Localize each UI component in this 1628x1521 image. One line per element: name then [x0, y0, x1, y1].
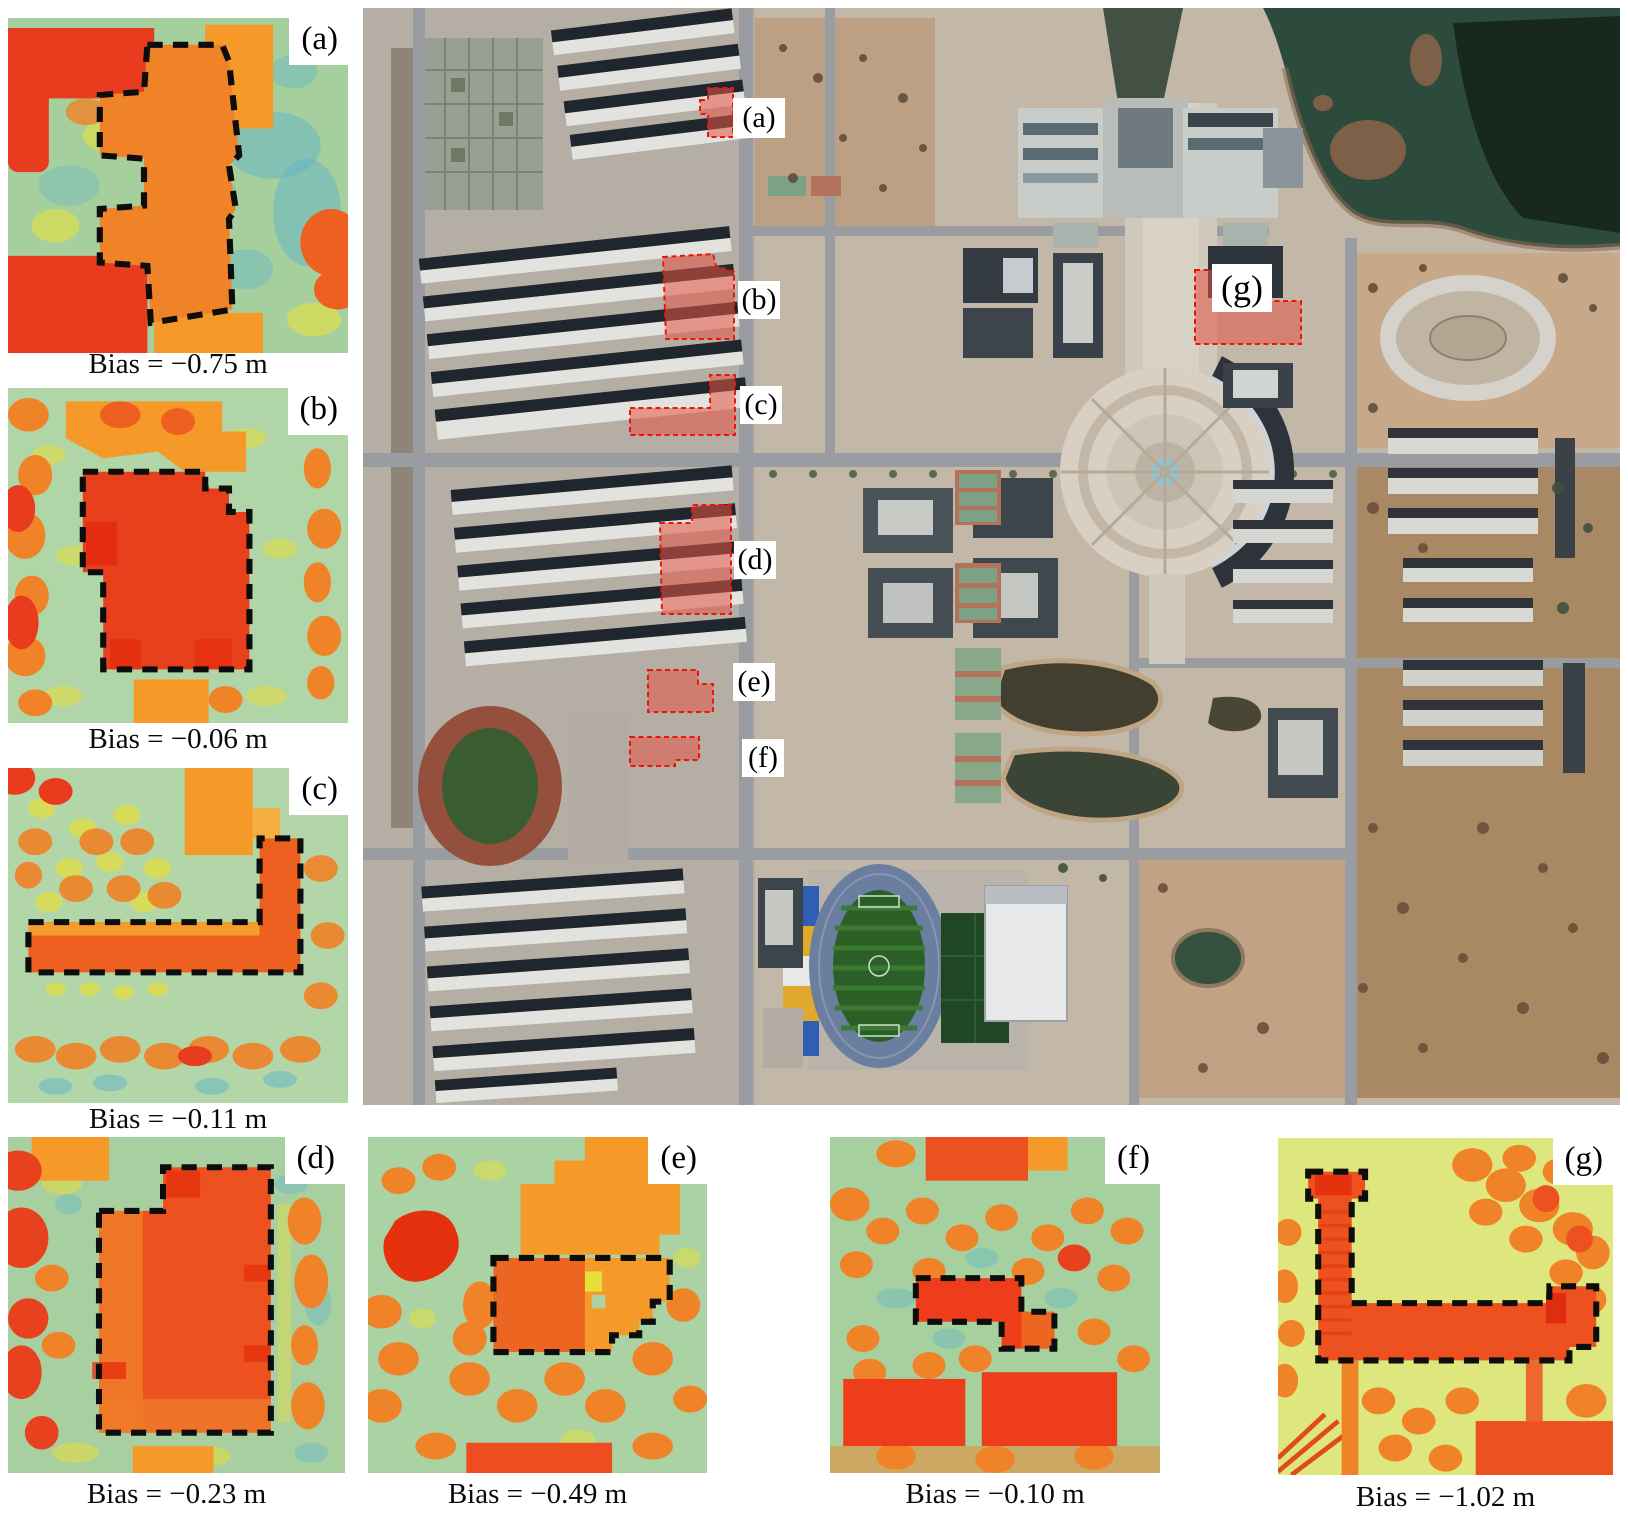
- panel-label-b: (b): [288, 388, 348, 435]
- heatmap-g-graphic: [1278, 1138, 1613, 1475]
- heatmap-panel-f: (f): [830, 1137, 1160, 1473]
- heatmap-panel-g: (g): [1278, 1138, 1613, 1475]
- panel-caption-d: Bias = −0.23 m: [8, 1478, 345, 1511]
- map-marker-e: (e): [733, 663, 775, 701]
- panel-label-g: (g): [1553, 1138, 1613, 1185]
- heatmap-panel-c: (c): [8, 768, 348, 1103]
- heatmap-panel-e: (e): [368, 1137, 707, 1473]
- panel-caption-c: Bias = −0.11 m: [8, 1103, 348, 1136]
- satellite-map: (a) (b) (c) (d) (e) (f) (g): [363, 8, 1620, 1105]
- panel-label-c: (c): [289, 768, 348, 815]
- satellite-graphic: [363, 8, 1620, 1105]
- heatmap-panel-a: (a): [8, 18, 348, 353]
- panel-caption-a: Bias = −0.75 m: [8, 348, 348, 381]
- heatmap-panel-d: (d): [8, 1137, 345, 1473]
- heatmap-c-graphic: [8, 768, 348, 1103]
- heatmap-d-graphic: [8, 1137, 345, 1473]
- figure-building-height-bias: (a) Bias = −0.75 m: [0, 0, 1628, 1521]
- panel-label-e: (e): [648, 1137, 707, 1184]
- map-marker-b: (b): [738, 281, 780, 319]
- panel-caption-b: Bias = −0.06 m: [8, 723, 348, 756]
- panel-label-f: (f): [1105, 1137, 1160, 1184]
- panel-label-d: (d): [285, 1137, 345, 1184]
- panel-caption-f: Bias = −0.10 m: [830, 1478, 1160, 1511]
- map-marker-f: (f): [742, 739, 784, 777]
- heatmap-a-graphic: [8, 18, 348, 353]
- heatmap-e-graphic: [368, 1137, 707, 1473]
- map-marker-d: (d): [734, 541, 776, 579]
- panel-caption-g: Bias = −1.02 m: [1278, 1481, 1613, 1514]
- heatmap-panel-b: (b): [8, 388, 348, 723]
- panel-caption-e: Bias = −0.49 m: [368, 1478, 707, 1511]
- heatmap-f-graphic: [830, 1137, 1160, 1473]
- panel-label-a: (a): [289, 18, 348, 65]
- map-marker-g: (g): [1212, 264, 1272, 312]
- heatmap-b-graphic: [8, 388, 348, 723]
- map-marker-a: (a): [733, 98, 785, 138]
- map-marker-c: (c): [740, 386, 782, 424]
